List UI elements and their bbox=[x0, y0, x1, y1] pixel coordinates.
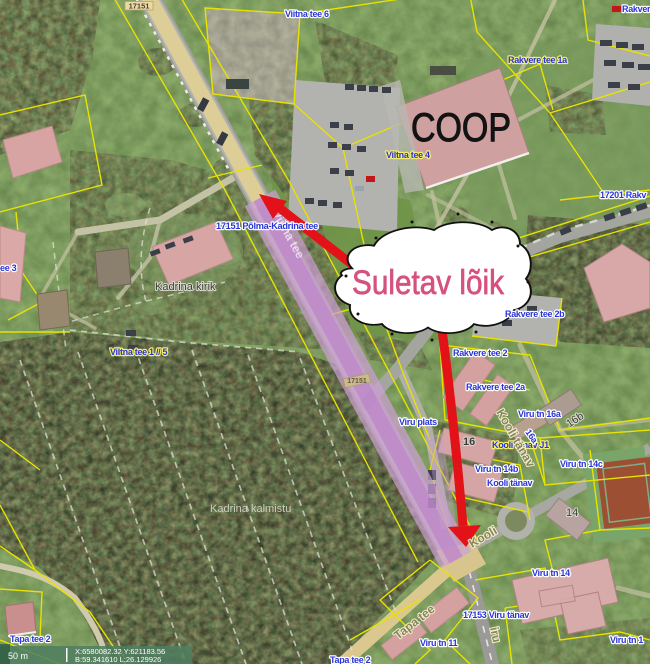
svg-text:Rakvere tee 2a: Rakvere tee 2a bbox=[466, 382, 526, 392]
svg-text:14: 14 bbox=[566, 507, 578, 519]
svg-text:Viru tn 1: Viru tn 1 bbox=[610, 635, 643, 645]
svg-text:Kadrina kirik: Kadrina kirik bbox=[155, 281, 216, 293]
svg-text:Kooli tänav: Kooli tänav bbox=[487, 478, 533, 488]
svg-text:17151: 17151 bbox=[129, 2, 150, 11]
svg-text:Kadrina kalmistu: Kadrina kalmistu bbox=[210, 503, 291, 515]
svg-text:Viru tn 14c: Viru tn 14c bbox=[560, 459, 603, 469]
svg-text:17151 Põlma-Kadrina tee: 17151 Põlma-Kadrina tee bbox=[216, 221, 318, 231]
svg-text:Viltna tee 4: Viltna tee 4 bbox=[386, 150, 430, 160]
svg-text:Viru tn 11: Viru tn 11 bbox=[420, 638, 458, 648]
svg-text:Rakvere tee 1a: Rakvere tee 1a bbox=[508, 55, 568, 65]
svg-text:B:59.341610 L:26.129926: B:59.341610 L:26.129926 bbox=[75, 655, 161, 664]
svg-text:17201 Rakv: 17201 Rakv bbox=[600, 190, 646, 200]
svg-text:17153 Viru tänav: 17153 Viru tänav bbox=[463, 610, 529, 620]
svg-text:Rakver: Rakver bbox=[622, 4, 650, 14]
svg-text:Tapa tee 2: Tapa tee 2 bbox=[10, 634, 51, 644]
svg-text:50 m: 50 m bbox=[8, 651, 28, 661]
svg-text:ee 3: ee 3 bbox=[0, 263, 17, 273]
svg-text:COOP: COOP bbox=[411, 106, 511, 150]
svg-text:Viru tn 14b: Viru tn 14b bbox=[475, 464, 519, 474]
svg-text:Viitna tee 6: Viitna tee 6 bbox=[285, 9, 329, 19]
svg-text:17151: 17151 bbox=[347, 378, 367, 385]
svg-text:Tapa tee 2: Tapa tee 2 bbox=[330, 655, 371, 664]
svg-text:Suletav lõik: Suletav lõik bbox=[352, 264, 505, 302]
svg-text:Viltna tee 1 // 5: Viltna tee 1 // 5 bbox=[110, 347, 168, 357]
svg-text:Viru tn 14: Viru tn 14 bbox=[532, 568, 570, 578]
svg-text:Rakvere tee 2: Rakvere tee 2 bbox=[453, 348, 507, 358]
svg-text:Viru plats: Viru plats bbox=[399, 417, 437, 427]
svg-text:16: 16 bbox=[463, 436, 475, 448]
svg-text:Rakvere tee 2b: Rakvere tee 2b bbox=[505, 309, 565, 319]
svg-text:Viru tn 16a: Viru tn 16a bbox=[518, 409, 562, 419]
